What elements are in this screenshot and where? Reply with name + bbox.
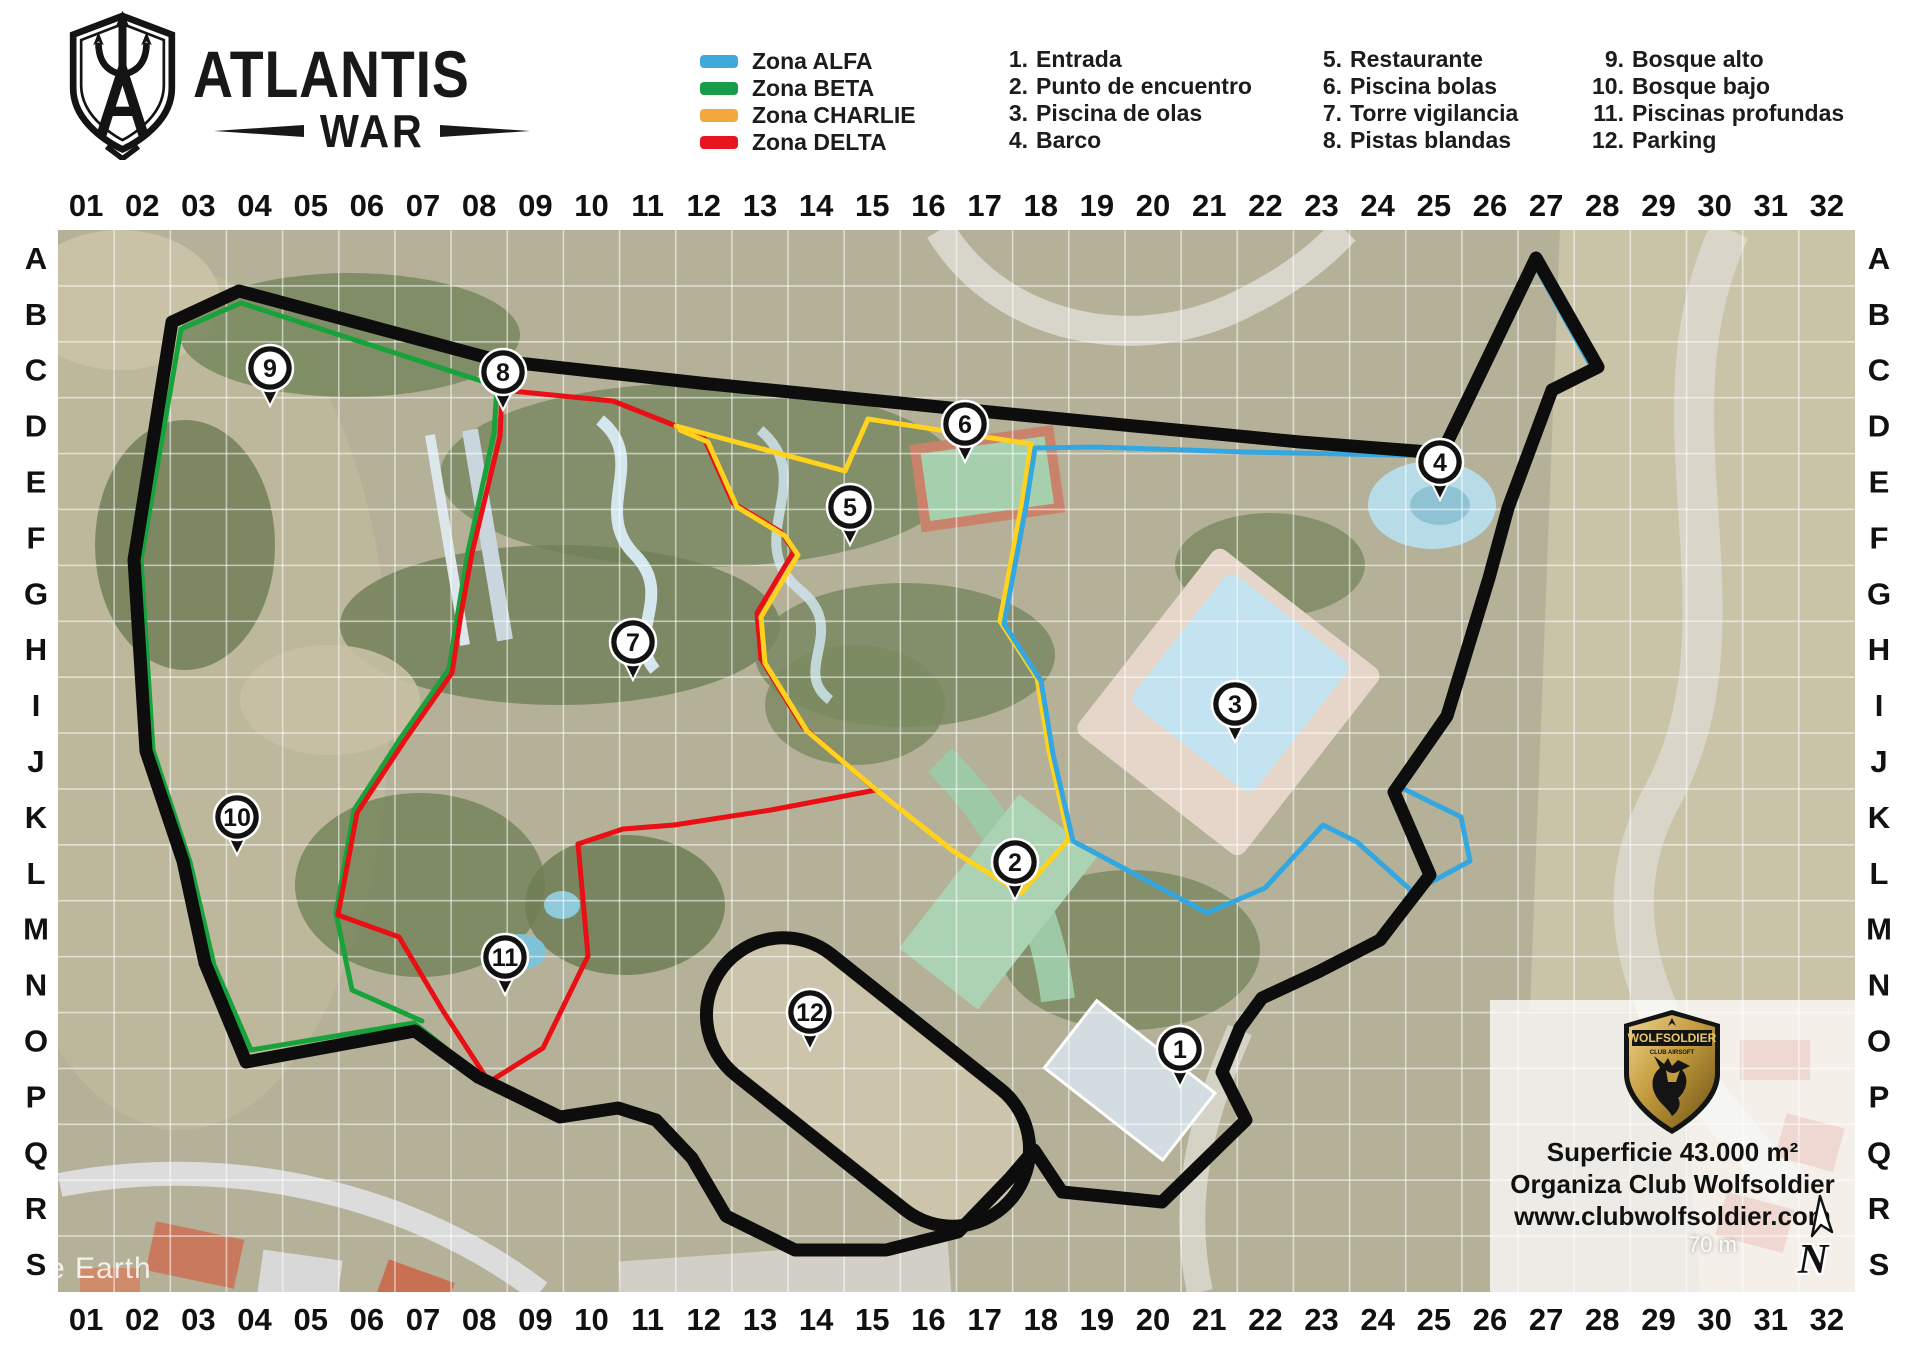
app-subtitle-row: WAR — [196, 104, 548, 158]
poi-number: 6. — [1300, 73, 1342, 100]
grid-col-label-bottom: 12 — [687, 1302, 721, 1337]
grid-col-label-top: 09 — [518, 188, 552, 223]
grid-col-label-top: 06 — [350, 188, 384, 223]
grid-col-label-bottom: 19 — [1080, 1302, 1114, 1337]
grid-col-label-top: 22 — [1248, 188, 1282, 223]
grid-col-label-top: 27 — [1529, 188, 1563, 223]
zone-legend: Zona ALFAZona BETAZona CHARLIEZona DELTA — [700, 48, 916, 156]
legend-color-swatch — [700, 136, 738, 149]
grid-col-label-top: 02 — [125, 188, 159, 223]
grid-row-label-left: G — [24, 576, 48, 611]
poi-label: Pistas blandas — [1350, 127, 1511, 154]
grid-col-label-bottom: 17 — [967, 1302, 1001, 1337]
poi-item: 2.Punto de encuentro — [986, 73, 1252, 100]
poi-number: 5. — [1300, 46, 1342, 73]
grid-col-label-bottom: 29 — [1641, 1302, 1675, 1337]
poi-label: Barco — [1036, 127, 1101, 154]
grid-row-label-right: L — [1870, 856, 1889, 891]
marker-number: 10 — [223, 804, 251, 832]
poi-list-column-1: 1.Entrada2.Punto de encuentro3.Piscina d… — [986, 46, 1252, 154]
legend-zone-label: Zona DELTA — [752, 129, 887, 156]
grid-col-label-top: 29 — [1641, 188, 1675, 223]
poi-number: 3. — [986, 100, 1028, 127]
grid-col-label-bottom: 11 — [631, 1302, 664, 1337]
poi-item: 10.Bosque bajo — [1582, 73, 1844, 100]
grid-col-label-top: 08 — [462, 188, 496, 223]
grid-col-label-top: 26 — [1473, 188, 1507, 223]
legend-zone-label: Zona CHARLIE — [752, 102, 916, 129]
grid-col-label-top: 17 — [967, 188, 1001, 223]
grid-col-label-bottom: 31 — [1754, 1302, 1788, 1337]
poi-number: 11. — [1582, 100, 1624, 127]
grid-row-label-right: E — [1869, 465, 1890, 500]
poi-item: 5.Restaurante — [1300, 46, 1518, 73]
marker-number: 6 — [958, 411, 972, 439]
grid-col-label-bottom: 18 — [1023, 1302, 1057, 1337]
grid-row-label-right: B — [1868, 297, 1890, 332]
grid-row-label-left: P — [26, 1079, 47, 1114]
grid-col-label-top: 25 — [1417, 188, 1451, 223]
poi-item: 1.Entrada — [986, 46, 1252, 73]
grid-row-label-right: G — [1867, 576, 1891, 611]
marker-number: 9 — [263, 355, 277, 383]
grid-row-label-right: C — [1868, 353, 1890, 388]
grid-row-label-right: A — [1868, 241, 1890, 276]
grid-col-label-bottom: 13 — [743, 1302, 777, 1337]
poi-label: Bosque alto — [1632, 46, 1764, 73]
poi-item: 3.Piscina de olas — [986, 100, 1252, 127]
app-title: ATLANTIS — [193, 36, 470, 112]
poi-label: Punto de encuentro — [1036, 73, 1252, 100]
grid-col-label-top: 32 — [1810, 188, 1844, 223]
imagery-watermark: e Earth — [48, 1252, 152, 1286]
legend-row: Zona ALFA — [700, 48, 916, 75]
poi-label: Bosque bajo — [1632, 73, 1770, 100]
badge-title: WOLFSOLDIER — [1628, 1031, 1717, 1045]
grid-col-label-top: 21 — [1192, 188, 1226, 223]
grid-row-label-left: B — [25, 297, 47, 332]
app-subtitle: WAR — [320, 104, 425, 158]
grid-col-label-top: 12 — [687, 188, 721, 223]
grid-row-label-left: A — [25, 241, 47, 276]
grid-col-label-bottom: 27 — [1529, 1302, 1563, 1337]
north-indicator: N — [1778, 1192, 1848, 1277]
badge-subtitle: CLUB AIRSOFT — [1650, 1050, 1695, 1056]
grid-col-label-bottom: 03 — [181, 1302, 215, 1337]
atlantis-war-map-poster: 0101020203030404050506060707080809091010… — [0, 0, 1920, 1357]
poi-item: 6.Piscina bolas — [1300, 73, 1518, 100]
poi-label: Piscina bolas — [1350, 73, 1497, 100]
grid-col-label-bottom: 15 — [855, 1302, 889, 1337]
grid-row-label-right: P — [1869, 1079, 1890, 1114]
poi-label: Piscina de olas — [1036, 100, 1202, 127]
grid-row-label-right: H — [1868, 632, 1890, 667]
poi-list-column-3: 9.Bosque alto10.Bosque bajo11.Piscinas p… — [1582, 46, 1844, 154]
grid-row-label-right: F — [1870, 520, 1889, 555]
grid-row-label-right: R — [1868, 1191, 1890, 1226]
grid-col-label-bottom: 23 — [1304, 1302, 1338, 1337]
grid-row-label-right: K — [1868, 800, 1891, 835]
map-scale-label: 70 m — [1688, 1232, 1737, 1258]
grid-row-label-left: L — [27, 856, 46, 891]
grid-row-label-right: J — [1870, 744, 1887, 779]
grid-col-label-top: 19 — [1080, 188, 1114, 223]
poi-label: Entrada — [1036, 46, 1122, 73]
grid-row-label-left: H — [25, 632, 47, 667]
poi-number: 9. — [1582, 46, 1624, 73]
grid-row-label-left: Q — [24, 1135, 48, 1170]
marker-number: 5 — [843, 494, 857, 522]
north-arrow-icon — [1798, 1192, 1842, 1238]
poi-number: 1. — [986, 46, 1028, 73]
grid-col-label-bottom: 06 — [350, 1302, 384, 1337]
grid-col-label-bottom: 16 — [911, 1302, 945, 1337]
grid-col-label-bottom: 14 — [799, 1302, 834, 1337]
wolfsoldier-badge-icon: WOLFSOLDIER CLUB AIRSOFT — [1620, 1008, 1725, 1136]
grid-row-label-left: C — [25, 353, 47, 388]
poi-item: 7.Torre vigilancia — [1300, 100, 1518, 127]
grid-col-label-bottom: 25 — [1417, 1302, 1451, 1337]
poi-item: 12.Parking — [1582, 127, 1844, 154]
legend-zone-label: Zona BETA — [752, 75, 874, 102]
grid-row-label-left: K — [25, 800, 48, 835]
poi-number: 7. — [1300, 100, 1342, 127]
legend-color-swatch — [700, 82, 738, 95]
poi-label: Restaurante — [1350, 46, 1483, 73]
grid-col-label-bottom: 24 — [1360, 1302, 1395, 1337]
grid-row-label-left: E — [26, 465, 47, 500]
grid-col-label-bottom: 07 — [406, 1302, 440, 1337]
grid-col-label-bottom: 08 — [462, 1302, 496, 1337]
poi-label: Piscinas profundas — [1632, 100, 1844, 127]
poi-number: 2. — [986, 73, 1028, 100]
grid-row-label-left: S — [26, 1247, 47, 1282]
poi-item: 9.Bosque alto — [1582, 46, 1844, 73]
right-dash-ornament — [440, 124, 530, 138]
grid-col-label-top: 07 — [406, 188, 440, 223]
legend-color-swatch — [700, 109, 738, 122]
marker-number: 8 — [496, 359, 510, 387]
poi-item: 11.Piscinas profundas — [1582, 100, 1844, 127]
grid-col-label-top: 20 — [1136, 188, 1170, 223]
grid-col-label-bottom: 22 — [1248, 1302, 1282, 1337]
grid-row-label-right: O — [1867, 1023, 1891, 1058]
grid-row-label-left: I — [32, 688, 41, 723]
poi-list-column-2: 5.Restaurante6.Piscina bolas7.Torre vigi… — [1300, 46, 1518, 154]
grid-row-label-left: O — [24, 1023, 48, 1058]
grid-row-label-left: F — [27, 520, 46, 555]
grid-col-label-bottom: 20 — [1136, 1302, 1170, 1337]
grid-col-label-top: 24 — [1360, 188, 1395, 223]
grid-col-label-bottom: 28 — [1585, 1302, 1619, 1337]
grid-col-label-bottom: 09 — [518, 1302, 552, 1337]
legend-row: Zona CHARLIE — [700, 102, 916, 129]
grid-col-label-bottom: 01 — [69, 1302, 103, 1337]
grid-row-label-left: M — [23, 912, 49, 947]
info-surface: Superficie 43.000 m² — [1547, 1136, 1798, 1168]
marker-number: 2 — [1008, 849, 1022, 877]
legend-zone-label: Zona ALFA — [752, 48, 873, 75]
grid-col-label-top: 05 — [293, 188, 327, 223]
legend-color-swatch — [700, 55, 738, 68]
grid-row-label-right: M — [1866, 912, 1892, 947]
marker-number: 11 — [492, 944, 519, 972]
grid-col-label-bottom: 04 — [237, 1302, 272, 1337]
legend-row: Zona DELTA — [700, 129, 916, 156]
grid-row-label-right: I — [1875, 688, 1884, 723]
grid-col-label-bottom: 21 — [1192, 1302, 1226, 1337]
grid-col-label-top: 16 — [911, 188, 945, 223]
grid-row-label-right: N — [1868, 968, 1890, 1003]
poi-item: 8.Pistas blandas — [1300, 127, 1518, 154]
grid-col-label-bottom: 10 — [574, 1302, 608, 1337]
legend-row: Zona BETA — [700, 75, 916, 102]
grid-col-label-top: 03 — [181, 188, 215, 223]
grid-col-label-top: 04 — [237, 188, 272, 223]
poi-number: 10. — [1582, 73, 1624, 100]
grid-row-label-left: R — [25, 1191, 47, 1226]
grid-col-label-bottom: 26 — [1473, 1302, 1507, 1337]
left-dash-ornament — [214, 124, 304, 138]
grid-col-label-top: 10 — [574, 188, 608, 223]
grid-col-label-top: 01 — [69, 188, 103, 223]
poi-label: Torre vigilancia — [1350, 100, 1518, 127]
north-letter: N — [1778, 1243, 1848, 1277]
poi-number: 4. — [986, 127, 1028, 154]
poi-label: Parking — [1632, 127, 1716, 154]
grid-col-label-top: 31 — [1754, 188, 1788, 223]
marker-number: 3 — [1228, 691, 1242, 719]
marker-number: 4 — [1433, 449, 1447, 477]
poi-number: 8. — [1300, 127, 1342, 154]
grid-col-label-top: 30 — [1697, 188, 1731, 223]
grid-col-label-bottom: 32 — [1810, 1302, 1844, 1337]
marker-number: 7 — [626, 629, 640, 657]
atlantis-logo-icon — [55, 8, 190, 160]
grid-col-label-top: 23 — [1304, 188, 1338, 223]
grid-col-label-top: 14 — [799, 188, 834, 223]
grid-row-label-right: D — [1868, 409, 1890, 444]
poi-item: 4.Barco — [986, 127, 1252, 154]
poi-number: 12. — [1582, 127, 1624, 154]
grid-row-label-right: S — [1869, 1247, 1890, 1282]
marker-number: 12 — [796, 999, 824, 1027]
grid-col-label-top: 11 — [631, 188, 664, 223]
marker-number: 1 — [1173, 1036, 1187, 1064]
grid-row-label-left: J — [27, 744, 44, 779]
grid-row-label-left: D — [25, 409, 47, 444]
grid-col-label-top: 13 — [743, 188, 777, 223]
grid-row-label-left: N — [25, 968, 47, 1003]
grid-row-label-right: Q — [1867, 1135, 1891, 1170]
grid-col-label-bottom: 02 — [125, 1302, 159, 1337]
grid-col-label-bottom: 05 — [293, 1302, 327, 1337]
grid-col-label-top: 28 — [1585, 188, 1619, 223]
grid-col-label-top: 15 — [855, 188, 889, 223]
grid-col-label-top: 18 — [1023, 188, 1057, 223]
grid-col-label-bottom: 30 — [1697, 1302, 1731, 1337]
